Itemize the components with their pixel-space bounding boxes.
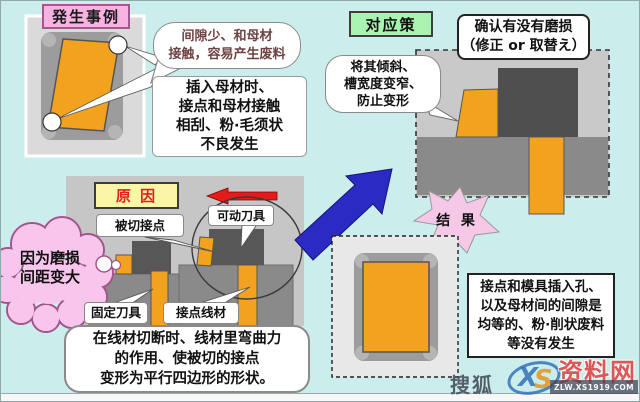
case-section-title: 発生事例 [42, 4, 130, 29]
cloud-trail-bubble-large [96, 256, 112, 272]
result-contact-rectangle [363, 262, 429, 352]
watermark-site-name: 搜狐 [450, 369, 494, 398]
watermark-url: ZLW.XS1919.COM [550, 380, 638, 394]
label-fixed-cutter: 固定刀具 [84, 302, 148, 324]
movable-cutter-block [209, 229, 264, 265]
case-description-box: 插入母材时、 接点和母材接触 相刮、粉·毛须状 不良发生 [152, 76, 307, 157]
diagram-canvas: 発生事例 间隙少、和母材 接触，容易产生废料 插入母材时、 接点和母材接触 相刮… [0, 0, 640, 402]
countermeasure-cutter-block [498, 68, 578, 137]
wear-cloud-text: 因为磨损 间距变大 [7, 248, 93, 288]
case-gap-bubble: 间隙少、和母材 接触，容易产生废料 [153, 22, 301, 69]
label-cut-contact: 被切接点 [96, 214, 184, 237]
cloud-trail-bubble-small [112, 261, 121, 270]
cutter-block-left [132, 241, 171, 274]
cause-description-box: 在线材切断时、线材里弯曲力 的作用、使被切的接点 变形为平行四边形的形状。 [64, 325, 310, 393]
gap-highlight-circle-top [109, 36, 127, 54]
gap-highlight-circle-bottom [43, 113, 61, 131]
label-movable-cutter: 可动刀具 [208, 205, 274, 226]
countermeasure-base [417, 137, 608, 195]
countermeasure-check-box: 确认有没有磨损 （修正 or 取替え） [457, 14, 590, 60]
contact-wire-right [238, 265, 257, 327]
label-contact-wire: 接点线材 [163, 302, 239, 324]
countermeasure-contact-wire [529, 137, 564, 214]
result-section-title: 结 果 [431, 210, 483, 230]
countermeasure-section-title: 对应策 [349, 11, 433, 37]
countermeasure-bubble: 将其倾斜、 槽宽度变窄、 防止变形 [325, 55, 441, 113]
cause-section-title: 原 因 [94, 182, 179, 209]
result-description-box: 接点和模具插入孔、 以及母材间的间隙是 均等的、粉·削状废料 等没有发生 [467, 273, 615, 358]
